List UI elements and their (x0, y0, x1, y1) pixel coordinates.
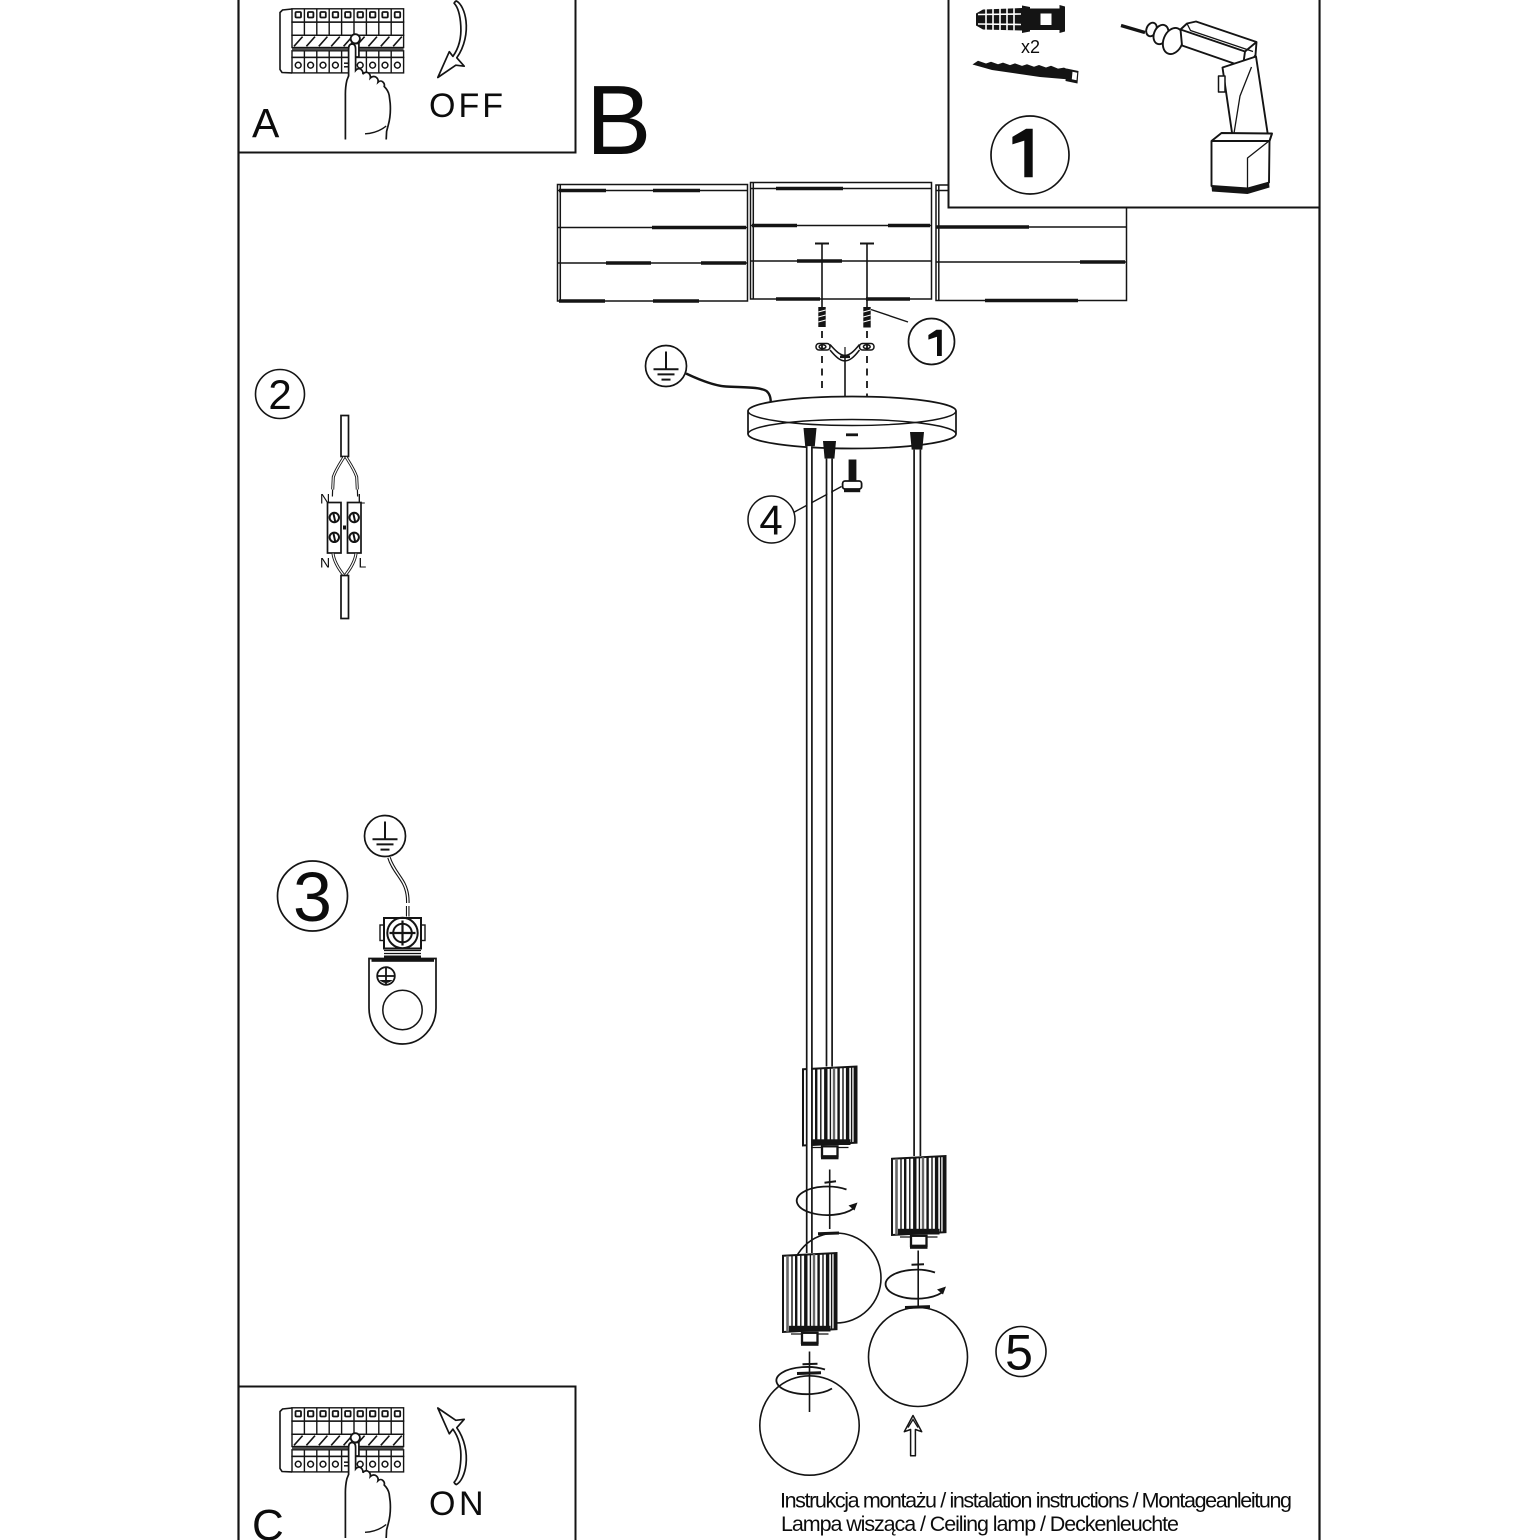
svg-text:N: N (320, 555, 330, 571)
svg-text:x2: x2 (1021, 37, 1040, 57)
svg-text:L: L (359, 555, 367, 571)
svg-text:2: 2 (268, 371, 291, 418)
svg-text:C: C (252, 1501, 284, 1540)
svg-text:OFF: OFF (429, 87, 506, 125)
svg-text:5: 5 (1005, 1325, 1033, 1381)
svg-text:4: 4 (759, 497, 782, 544)
svg-text:Lampa wisząca / Ceiling lamp /: Lampa wisząca / Ceiling lamp / Deckenleu… (781, 1512, 1179, 1536)
svg-text:ON: ON (429, 1485, 487, 1523)
svg-text:3: 3 (293, 858, 332, 936)
svg-text:Instrukcja montażu / instalati: Instrukcja montażu / instalation instruc… (780, 1489, 1292, 1513)
svg-text:A: A (252, 100, 280, 146)
svg-text:B: B (586, 65, 651, 175)
